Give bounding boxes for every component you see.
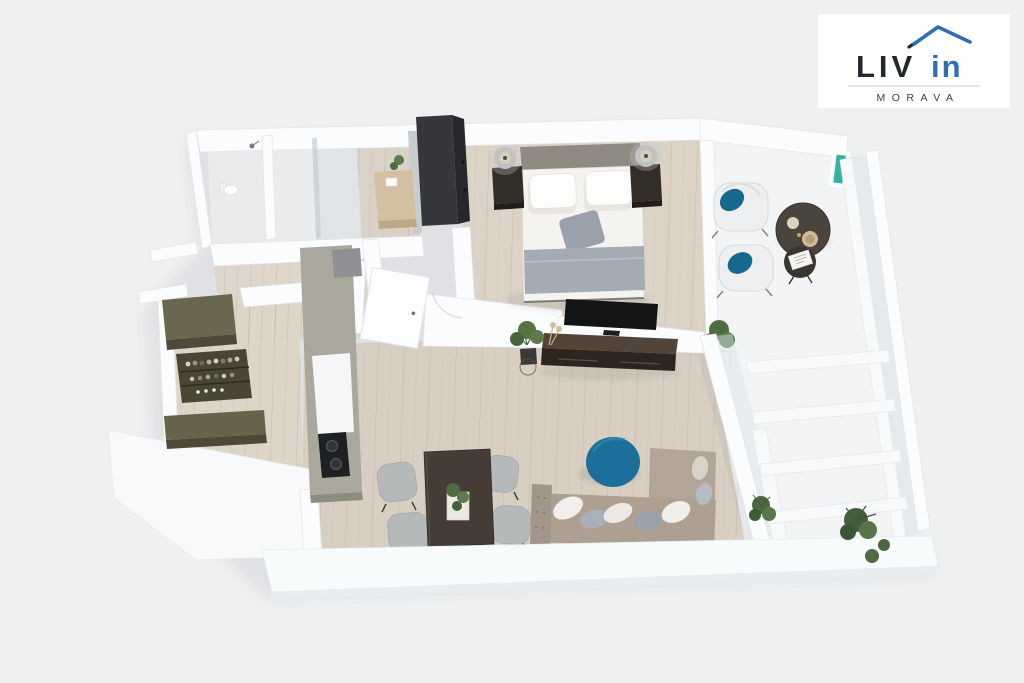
teal-pouf	[586, 437, 640, 487]
desk	[374, 170, 416, 221]
table-plate-2-inner	[806, 235, 815, 244]
wardrobe-side	[416, 115, 458, 226]
bed-pillow-2	[585, 170, 632, 206]
dining-chair-4	[491, 505, 532, 546]
logo-tagline: MORAVA	[877, 92, 960, 104]
table-plate-1	[787, 217, 799, 229]
bed-pillow-1	[529, 173, 576, 209]
kitchen-sink-section	[332, 248, 362, 278]
wardrobe-knob-1	[462, 161, 465, 164]
toilet	[224, 185, 238, 195]
hall-door-open	[360, 268, 430, 349]
olive-cabinet-top	[162, 294, 236, 340]
sofa-arm-left	[530, 484, 552, 545]
logo-roof-icon	[914, 27, 970, 44]
floorplan-render: LIV in MORAVA	[0, 0, 1024, 683]
table-gold-dot	[797, 233, 801, 237]
wardrobe-knob-2	[464, 189, 467, 192]
burner-2	[331, 459, 342, 470]
logo-brand-accent: in	[931, 49, 963, 84]
bedside-lamp-right	[630, 141, 662, 171]
dining-chair-1	[376, 461, 419, 504]
burner-1	[327, 441, 338, 452]
window-fin-upper	[150, 242, 198, 262]
logo-brand-primary: LIV	[856, 49, 916, 84]
desk-paper	[386, 178, 397, 186]
tv-stand-foot	[603, 330, 620, 336]
livin-morava-logo: LIV in MORAVA	[818, 14, 1010, 108]
kitchen-counter-white	[312, 353, 354, 434]
tv	[564, 299, 658, 330]
cooktop	[318, 432, 350, 478]
bedside-lamp-left	[489, 145, 521, 175]
logo-card: LIV in MORAVA	[818, 14, 1010, 108]
bed-blanket	[524, 246, 645, 294]
